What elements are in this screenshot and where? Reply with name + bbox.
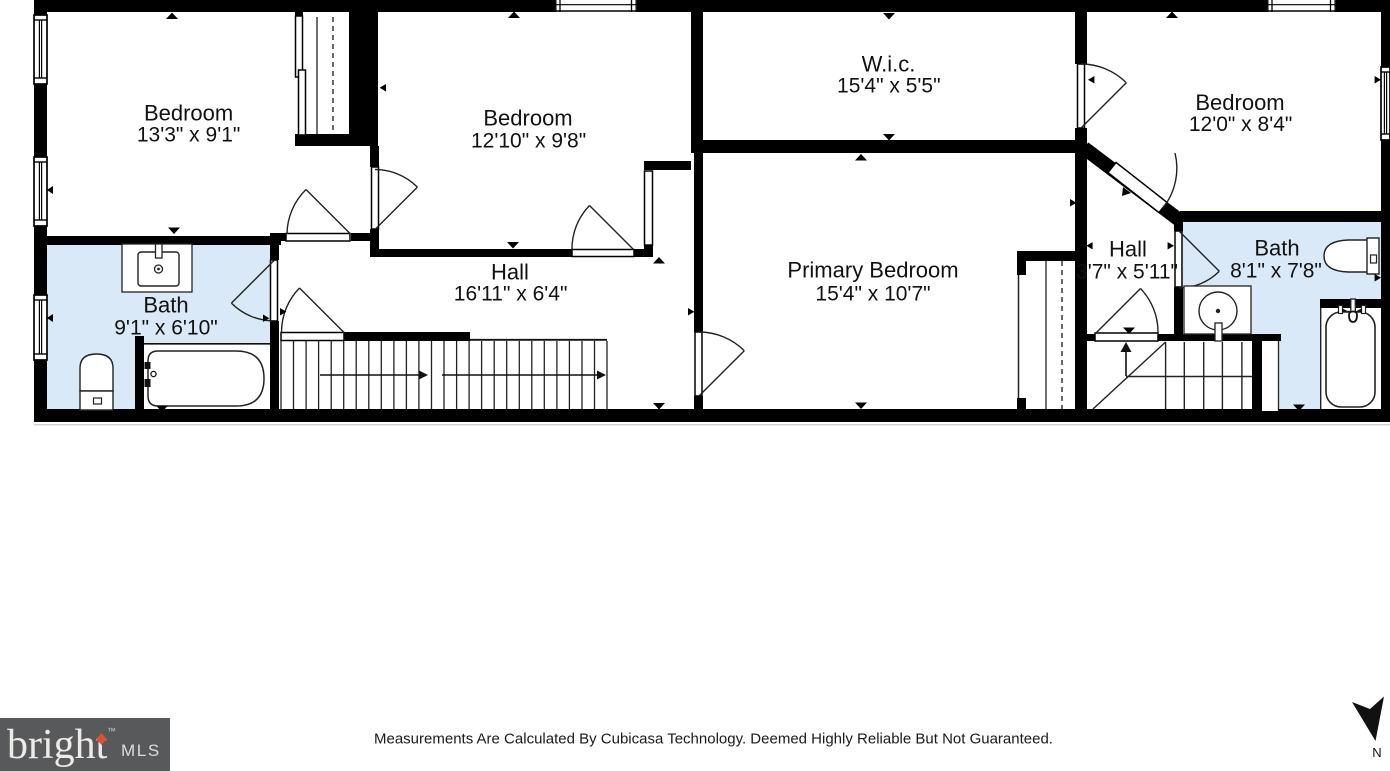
svg-text:8'1" x 7'8": 8'1" x 7'8" <box>1230 259 1322 282</box>
svg-text:15'4" x 10'7": 15'4" x 10'7" <box>815 282 930 305</box>
svg-text:W.i.c.: W.i.c. <box>862 51 916 76</box>
svg-text:13'3" x 9'1": 13'3" x 9'1" <box>137 123 241 146</box>
svg-text:Bath: Bath <box>1254 235 1299 260</box>
svg-text:3'7" x 5'11": 3'7" x 5'11" <box>1076 260 1178 283</box>
svg-text:Bedroom: Bedroom <box>483 105 572 130</box>
svg-text:Primary Bedroom: Primary Bedroom <box>787 257 958 282</box>
svg-text:N: N <box>1372 745 1381 760</box>
svg-text:Bedroom: Bedroom <box>144 100 233 125</box>
svg-text:™: ™ <box>107 726 116 736</box>
svg-text:12'0" x 8'4": 12'0" x 8'4" <box>1189 113 1293 136</box>
svg-text:9'1" x 6'10": 9'1" x 6'10" <box>114 316 218 339</box>
svg-text:16'11" x 6'4": 16'11" x 6'4" <box>454 282 568 305</box>
svg-text:12'10" x 9'8": 12'10" x 9'8" <box>471 129 586 152</box>
svg-text:15'4" x 5'5": 15'4" x 5'5" <box>837 74 941 97</box>
svg-text:Measurements Are Calculated By: Measurements Are Calculated By Cubicasa … <box>374 731 1053 748</box>
svg-text:Bath: Bath <box>143 292 188 317</box>
svg-text:bright: bright <box>7 722 108 768</box>
svg-text:MLS: MLS <box>121 741 161 760</box>
svg-text:Bedroom: Bedroom <box>1195 90 1284 115</box>
svg-text:Hall: Hall <box>1109 236 1147 261</box>
svg-text:Hall: Hall <box>491 259 529 284</box>
